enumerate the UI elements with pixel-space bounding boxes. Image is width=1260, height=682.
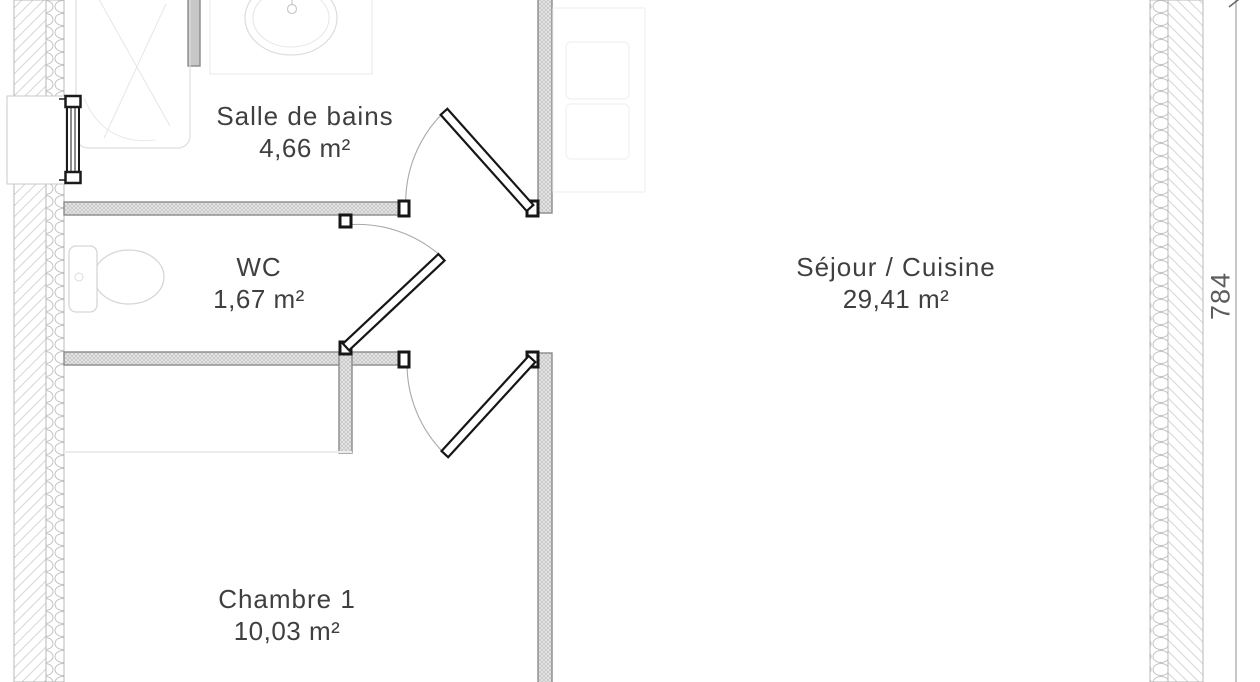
floor-plan: Salle de bains 4,66 m² WC 1,67 m² Séjour… — [0, 0, 1260, 682]
wc-door-leaf — [343, 254, 445, 350]
toilet — [69, 246, 164, 312]
bedroom-door-arc — [407, 362, 445, 454]
window-recess — [7, 96, 66, 184]
dimension-label: 784 — [1206, 272, 1237, 320]
room-name: WC — [213, 251, 305, 283]
partition-stub-bedroom — [339, 352, 352, 453]
bathroom-sink — [210, 0, 372, 74]
room-area: 1,67 m² — [213, 283, 305, 315]
bathroom-door-leaf — [441, 109, 534, 211]
room-area: 29,41 m² — [796, 283, 996, 315]
door-blocks — [340, 201, 538, 367]
floor-plan-drawing — [0, 0, 1260, 682]
partition-bathroom-wc — [64, 202, 408, 215]
room-label-wc: WC 1,67 m² — [213, 251, 305, 315]
shower-tray — [76, 0, 190, 148]
kitchen-unit — [553, 8, 645, 192]
wc-door-arc — [345, 224, 442, 257]
partition-wc-bedroom — [64, 352, 408, 365]
room-label-sejour-cuisine: Séjour / Cuisine 29,41 m² — [796, 251, 996, 315]
bedroom-door-leaf — [442, 356, 536, 457]
room-area: 4,66 m² — [216, 132, 393, 164]
bathroom-door-arc — [406, 112, 444, 211]
room-name: Séjour / Cuisine — [796, 251, 996, 283]
room-label-chambre-1: Chambre 1 10,03 m² — [218, 583, 356, 647]
partition-vertical-lower — [538, 353, 552, 682]
dimension-line — [1229, 0, 1243, 682]
room-name: Chambre 1 — [218, 583, 356, 615]
room-label-salle-de-bains: Salle de bains 4,66 m² — [216, 100, 393, 164]
partition-vertical-upper — [538, 0, 552, 213]
room-area: 10,03 m² — [218, 615, 356, 647]
room-name: Salle de bains — [216, 100, 393, 132]
right-exterior-wall — [1150, 0, 1203, 682]
